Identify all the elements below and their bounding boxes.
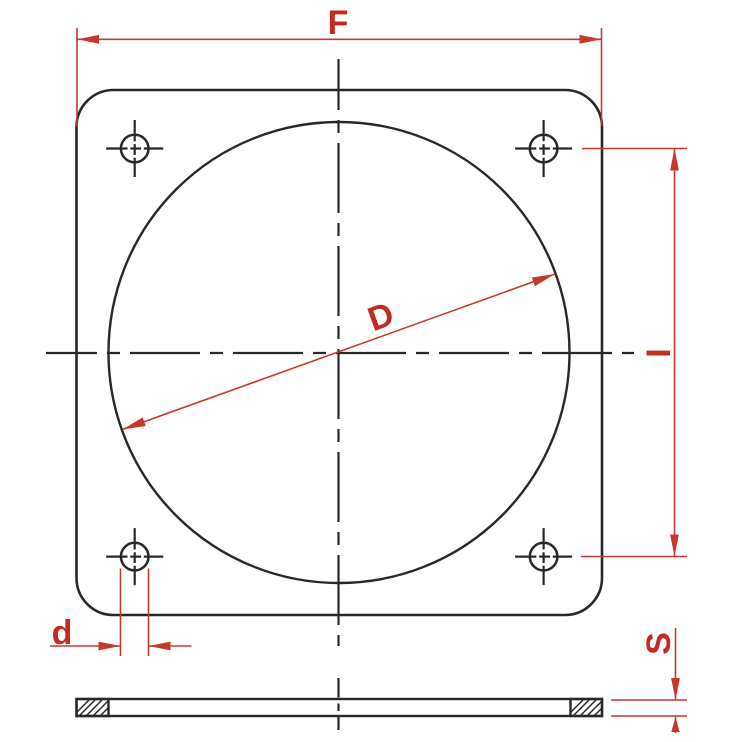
svg-text:d: d <box>52 614 73 652</box>
svg-text:I: I <box>640 348 678 357</box>
svg-text:F: F <box>328 4 349 42</box>
svg-text:S: S <box>640 632 678 655</box>
